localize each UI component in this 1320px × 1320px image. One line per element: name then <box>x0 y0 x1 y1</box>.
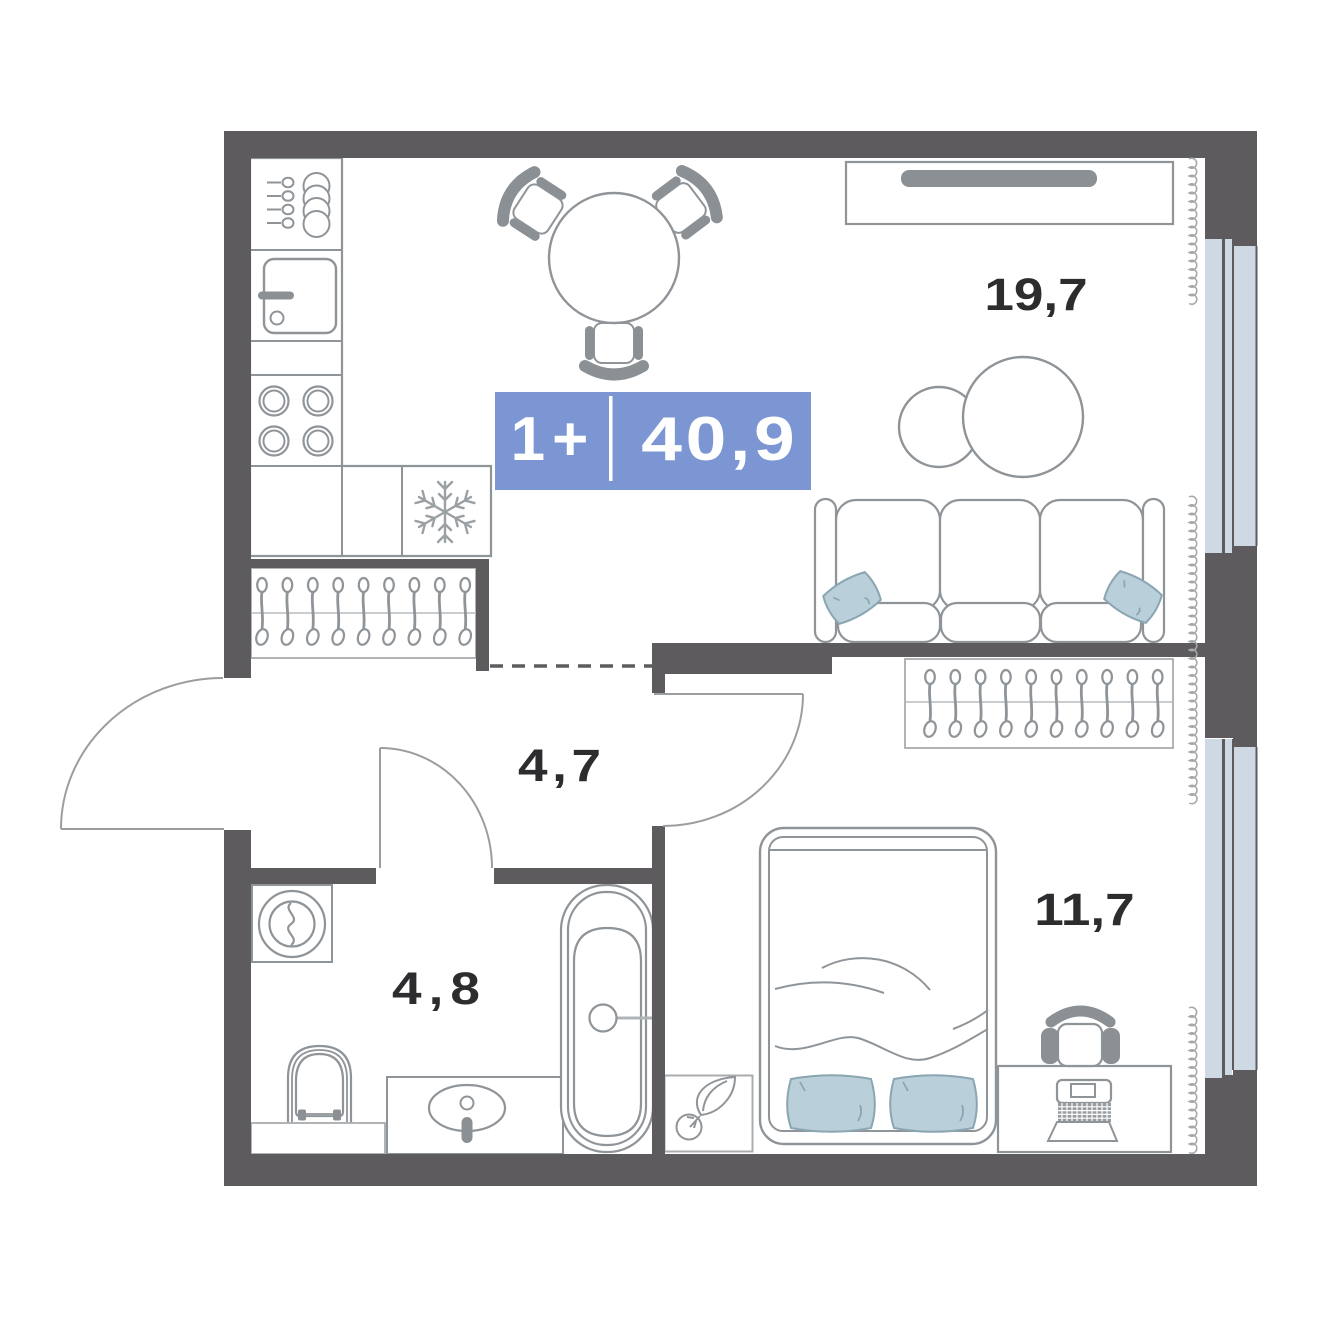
svg-text:4,8: 4,8 <box>392 964 487 1014</box>
svg-text:11,7: 11,7 <box>1034 885 1134 935</box>
svg-text:40,9: 40,9 <box>641 405 798 474</box>
svg-text:4,7: 4,7 <box>518 741 606 791</box>
svg-text:19,7: 19,7 <box>984 270 1087 320</box>
svg-text:1+: 1+ <box>511 405 596 474</box>
